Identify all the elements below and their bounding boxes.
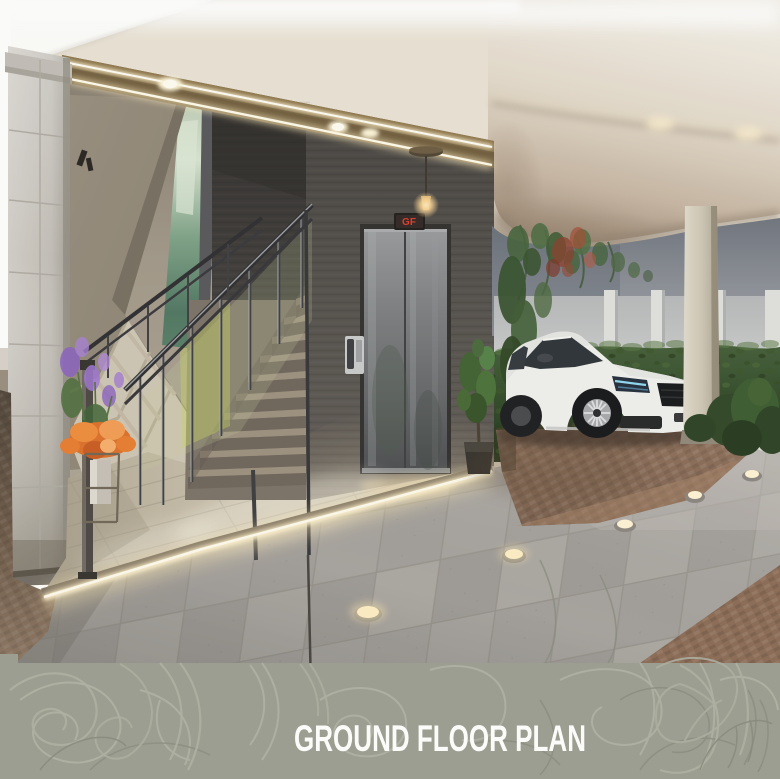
svg-text:GROUND FLOOR PLAN: GROUND FLOOR PLAN [294, 718, 586, 759]
